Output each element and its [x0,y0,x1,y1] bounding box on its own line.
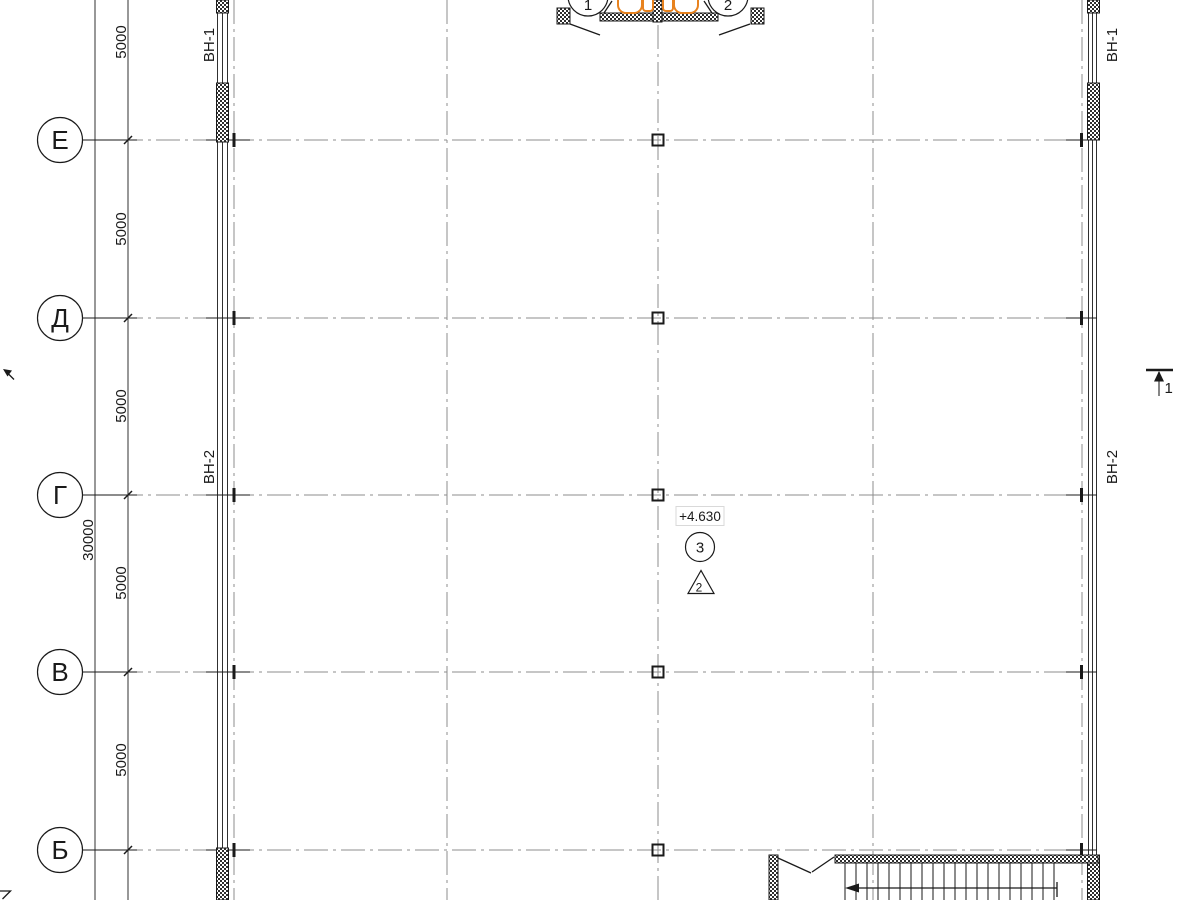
door-swing-left [570,24,600,35]
door-swing-right [719,24,750,35]
stair-door-leaf [812,857,834,872]
wall-tag-vn1-left: ВН-1 [201,28,218,62]
node-triangle-label: 2 [696,581,703,595]
toilet-bowl-left [618,0,642,13]
floor-plan-drawing: 1 2 Е Д Г [0,0,1200,900]
toilet-tank-left [643,0,653,11]
level-mark: +4.630 [679,509,721,524]
floor-plan-canvas: 1 2 Е Д Г [0,0,1200,900]
axis-label-1: 1 [584,0,592,14]
axis-label-V: В [51,657,68,687]
right-wall [1088,0,1100,900]
staircase [769,855,1098,900]
stair-door-leaf [778,858,811,873]
bay-dim: 5000 [113,743,130,776]
axis-label-2: 2 [724,0,732,14]
bay-dim: 5000 [113,566,130,599]
wall-tag-vn2-right: ВН-2 [1104,450,1121,484]
toilet-bowl-right [674,0,698,13]
stair-direction-arrow [845,882,1057,897]
section-marker-left [3,369,14,380]
bay-dim: 5000 [113,212,130,245]
axis-label-D: Д [51,303,69,333]
sanitary-block: 1 2 [557,0,764,35]
stair-treads [845,863,1054,900]
axis-label-G: Г [53,480,67,510]
axis-label-B: Б [51,835,68,865]
left-wall [217,0,229,900]
bay-dim: 5000 [113,25,130,58]
node-circle-label: 3 [696,540,704,557]
wall-tag-vn1-right: ВН-1 [1104,28,1121,62]
section-marker-right: 1 [1146,370,1173,397]
centre-annotations: +4.630 3 2 [676,507,724,595]
section-label: 1 [1165,380,1173,397]
row-axis-bubbles: Е Д Г В Б [38,118,83,873]
wall-tag-vn2-left: ВН-2 [201,450,218,484]
edge-fragment-bottom-left [0,891,11,899]
dimension-texts: 5000 5000 5000 5000 5000 30000 [80,25,130,776]
wall-tags: ВН-1 ВН-2 ВН-1 ВН-2 [201,28,1121,484]
axis-label-E: Е [51,125,68,155]
total-dim: 30000 [80,519,97,561]
toilet-tank-right [663,0,673,11]
bay-dim: 5000 [113,389,130,422]
